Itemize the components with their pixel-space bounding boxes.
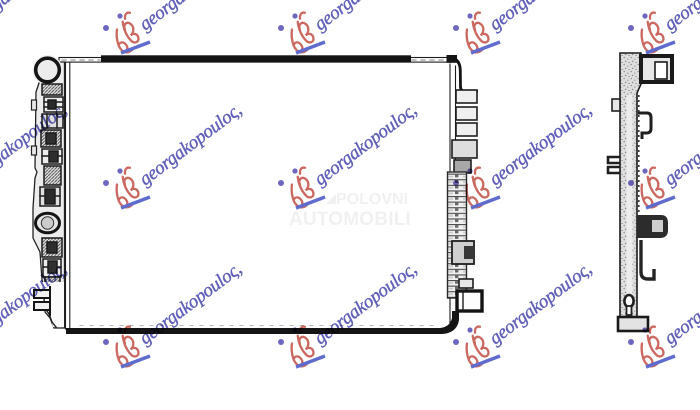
svg-text:AUTOMOBILI: AUTOMOBILI <box>289 209 411 230</box>
svg-text:POLOVNI: POLOVNI <box>336 191 408 208</box>
